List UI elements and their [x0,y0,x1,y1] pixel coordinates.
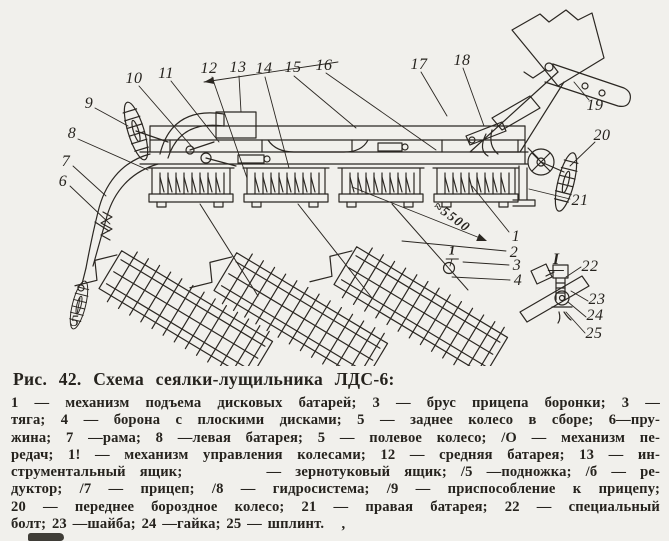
callout-number: 21 [572,192,589,210]
legend-line: болт; 23 —шайба; 24 —гайка; 25 — шплинт.… [11,516,660,533]
figure-caption: Рис. 42. Схема сеялки-лущильника ЛДС-6: … [11,369,660,533]
callout-number: 19 [587,97,604,115]
figure-diagram: 9101112131415161718192021876512342223242… [0,0,669,366]
legend-line: дуктор; /7 — прицеп; /8 — гидросистема; … [11,481,660,498]
callout-number: 5 [71,313,80,331]
callout-number: 9 [85,95,94,113]
callout-number: 20 [594,127,611,145]
callout-number: 6 [59,173,68,191]
detail-location-marker: 1 [446,243,459,260]
callout-number: 8 [68,125,77,143]
legend-line: тяга; 4 — борона с плоскими дисками; 5 —… [11,412,660,429]
legend-line: струментальный ящик; — зернотуковый ящик… [11,464,660,481]
callout-number: 12 [201,60,218,78]
legend-line: редач; 1! — механизм управления колесами… [11,447,660,464]
legend-line: 20 — переднее бороздное колесо; 21 — пра… [11,499,660,516]
callout-number: 18 [454,52,471,70]
caption-legend: 1 — механизм подъема дисковых батарей; 3… [11,395,660,533]
machine-line-art [0,0,669,366]
callout-number: 14 [256,60,273,78]
steering-assembly [120,100,236,166]
callout-number: 17 [411,56,428,74]
callout-number: 10 [126,70,143,88]
callout-number: 22 [582,258,599,276]
scan-artifact [28,533,64,541]
scanned-page: 9101112131415161718192021876512342223242… [0,0,669,541]
detail-view-label: I [548,251,564,271]
disc-batteries [148,166,535,207]
left-drawbar [67,154,158,330]
callout-number: 11 [158,65,174,83]
callout-number: 15 [285,59,302,77]
hitch-assembly [466,64,564,156]
callout-number: 7 [62,153,71,171]
callout-number: 16 [316,57,333,75]
callout-number: 24 [587,307,604,325]
callout-number: 13 [230,59,247,77]
callout-number: 25 [586,325,603,343]
legend-line: жина; 7 —рама; 8 —левая батарея; 5 — пол… [11,430,660,447]
callout-number: 4 [514,272,523,290]
tractor-drawbar [512,10,630,106]
detail-view-bolt [520,264,589,323]
caption-title: Рис. 42. Схема сеялки-лущильника ЛДС-6: [13,369,660,390]
legend-line: 1 — механизм подъема дисковых батарей; 3… [11,395,660,412]
